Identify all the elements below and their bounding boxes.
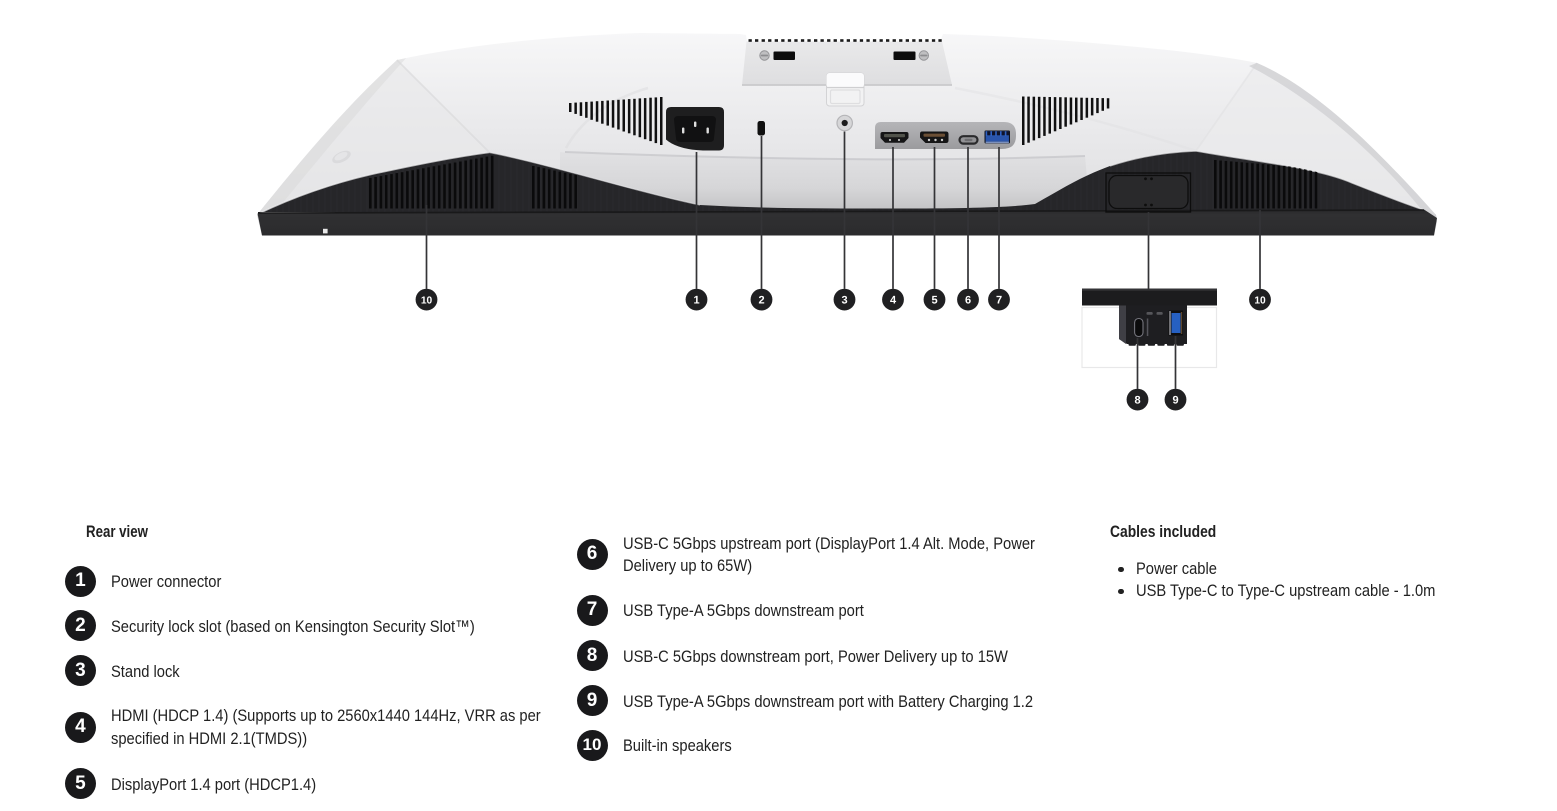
svg-text:8: 8 (1134, 394, 1140, 406)
svg-text:2: 2 (758, 294, 764, 306)
svg-text:5: 5 (931, 294, 937, 306)
svg-text:1: 1 (693, 294, 699, 306)
svg-text:6: 6 (965, 294, 971, 306)
svg-text:10: 10 (421, 295, 433, 306)
svg-text:3: 3 (841, 294, 847, 306)
svg-text:10: 10 (1254, 295, 1266, 306)
svg-text:7: 7 (996, 294, 1002, 306)
svg-text:9: 9 (1172, 394, 1178, 406)
svg-text:4: 4 (890, 294, 897, 306)
